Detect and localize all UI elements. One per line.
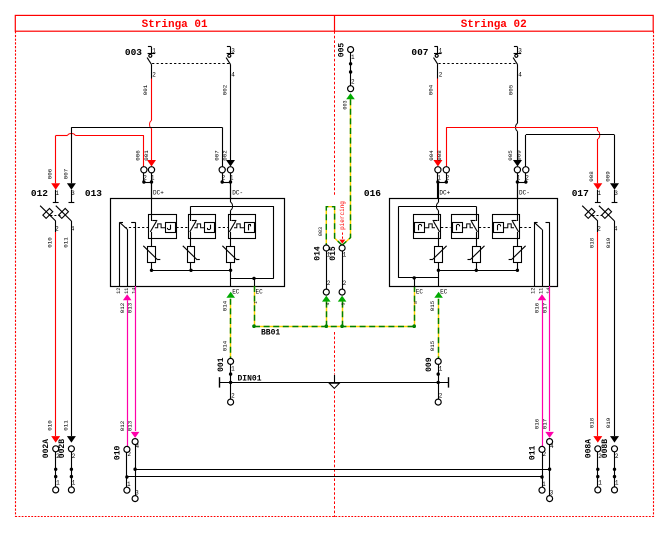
svg-text:018: 018: [589, 237, 596, 248]
svg-text:003: 003: [342, 100, 348, 109]
svg-text:3: 3: [135, 490, 139, 497]
svg-text:004: 004: [428, 150, 435, 161]
svg-text:012: 012: [119, 302, 126, 313]
svg-text:1: 1: [439, 47, 443, 54]
svg-text:2: 2: [542, 451, 546, 458]
svg-text:3: 3: [231, 47, 235, 54]
svg-text:EC: EC: [440, 289, 448, 296]
svg-text:1: 1: [343, 251, 347, 258]
svg-text:015: 015: [329, 246, 338, 261]
svg-text:010: 010: [47, 237, 54, 248]
svg-text:016: 016: [534, 418, 541, 429]
svg-text:2: 2: [231, 392, 235, 399]
svg-text:002A: 002A: [42, 439, 51, 458]
svg-text:2: 2: [55, 226, 59, 233]
svg-text:019: 019: [605, 417, 612, 428]
svg-text:002B: 002B: [58, 439, 67, 458]
svg-text:011: 011: [62, 420, 69, 431]
svg-text:017: 017: [541, 302, 548, 313]
svg-text:2: 2: [222, 174, 226, 181]
svg-text:008A: 008A: [584, 439, 593, 458]
svg-text:1: 1: [517, 174, 521, 181]
svg-text:1: 1: [56, 480, 60, 487]
svg-text:008: 008: [436, 150, 443, 161]
svg-text:DIN01: DIN01: [238, 374, 262, 383]
svg-text:009: 009: [516, 150, 523, 161]
svg-text:EC: EC: [416, 289, 424, 296]
svg-text:DC+: DC+: [153, 190, 164, 197]
svg-text:1: 1: [230, 174, 234, 181]
svg-text:4: 4: [71, 226, 75, 233]
svg-text:2: 2: [615, 453, 619, 460]
svg-text:1: 1: [598, 480, 602, 487]
svg-text:004: 004: [428, 84, 435, 95]
svg-text:3: 3: [614, 190, 618, 197]
svg-text:Stringa 02: Stringa 02: [461, 19, 527, 31]
svg-text:1: 1: [151, 174, 155, 181]
svg-text:013: 013: [127, 302, 134, 313]
svg-text:piercing: piercing: [339, 201, 346, 230]
svg-text:013: 013: [127, 420, 134, 431]
svg-text:5: 5: [341, 302, 347, 305]
svg-text:009: 009: [605, 171, 612, 182]
svg-text:BB01: BB01: [261, 329, 280, 338]
svg-text:12: 12: [116, 288, 122, 294]
svg-text:DC+: DC+: [439, 190, 450, 197]
svg-text:1: 1: [72, 480, 76, 487]
svg-text:3: 3: [550, 490, 554, 497]
svg-text:005: 005: [507, 84, 514, 95]
svg-text:4: 4: [231, 72, 235, 79]
svg-text:2: 2: [446, 174, 450, 181]
svg-text:007: 007: [62, 168, 69, 179]
svg-text:005: 005: [507, 150, 514, 161]
svg-text:018: 018: [589, 417, 596, 428]
svg-text:019: 019: [605, 237, 612, 248]
svg-text:1: 1: [351, 54, 355, 61]
svg-text:009: 009: [425, 357, 434, 372]
svg-text:2: 2: [127, 451, 131, 458]
svg-text:003: 003: [125, 47, 142, 58]
svg-text:012: 012: [31, 188, 48, 199]
svg-text:Stringa 01: Stringa 01: [142, 19, 208, 31]
svg-text:1: 1: [597, 190, 601, 197]
svg-text:008B: 008B: [601, 439, 610, 458]
svg-text:2: 2: [343, 280, 347, 287]
svg-text:016: 016: [534, 302, 541, 313]
svg-text:2: 2: [152, 72, 156, 79]
svg-text:016: 016: [364, 188, 381, 199]
svg-text:4: 4: [325, 302, 331, 305]
svg-text:DC-: DC-: [519, 190, 530, 197]
svg-text:1: 1: [152, 47, 156, 54]
svg-text:11: 11: [538, 288, 544, 294]
svg-text:002: 002: [221, 84, 228, 95]
svg-text:2: 2: [439, 392, 443, 399]
svg-text:1: 1: [231, 365, 235, 372]
svg-text:001: 001: [142, 84, 149, 95]
svg-text:001: 001: [217, 357, 226, 372]
svg-text:1: 1: [437, 174, 441, 181]
svg-text:011: 011: [529, 446, 538, 461]
svg-text:2: 2: [439, 72, 443, 79]
svg-text:007: 007: [213, 150, 220, 161]
svg-text:DC-: DC-: [232, 190, 243, 197]
svg-text:11: 11: [124, 288, 130, 294]
svg-text:2: 2: [143, 174, 147, 181]
svg-text:1: 1: [127, 481, 131, 488]
svg-text:006: 006: [47, 168, 54, 179]
svg-text:8: 8: [413, 301, 419, 304]
svg-text:1: 1: [439, 365, 443, 372]
svg-text:015: 015: [429, 300, 436, 311]
svg-text:3: 3: [518, 47, 522, 54]
svg-text:4: 4: [135, 443, 139, 450]
svg-text:007: 007: [411, 47, 428, 58]
svg-text:2: 2: [525, 174, 529, 181]
svg-text:1: 1: [55, 190, 59, 197]
svg-text:017: 017: [572, 188, 589, 199]
svg-text:3: 3: [71, 190, 75, 197]
svg-text:12: 12: [531, 288, 537, 294]
svg-text:1: 1: [253, 301, 259, 304]
svg-text:003: 003: [318, 227, 324, 236]
svg-text:005: 005: [338, 43, 347, 58]
svg-text:4: 4: [518, 72, 522, 79]
svg-text:EC: EC: [232, 289, 240, 296]
svg-text:014: 014: [313, 246, 322, 261]
svg-text:2: 2: [597, 226, 601, 233]
svg-text:010: 010: [114, 446, 123, 461]
svg-text:1: 1: [542, 481, 546, 488]
svg-text:010: 010: [47, 420, 54, 431]
svg-text:011: 011: [62, 237, 69, 248]
svg-text:EC: EC: [256, 289, 264, 296]
svg-text:2: 2: [327, 280, 331, 287]
svg-text:2: 2: [351, 79, 355, 86]
svg-text:4: 4: [550, 443, 554, 450]
svg-text:4: 4: [614, 226, 618, 233]
svg-text:014: 014: [221, 300, 228, 311]
svg-text:006: 006: [135, 150, 142, 161]
svg-text:014: 014: [221, 340, 228, 351]
svg-text:015: 015: [429, 340, 436, 351]
svg-text:14: 14: [132, 288, 138, 294]
svg-text:013: 013: [85, 188, 102, 199]
svg-text:017: 017: [541, 418, 548, 429]
svg-text:1: 1: [615, 480, 619, 487]
svg-text:2: 2: [72, 453, 76, 460]
svg-text:008: 008: [588, 171, 595, 182]
svg-text:012: 012: [119, 420, 126, 431]
